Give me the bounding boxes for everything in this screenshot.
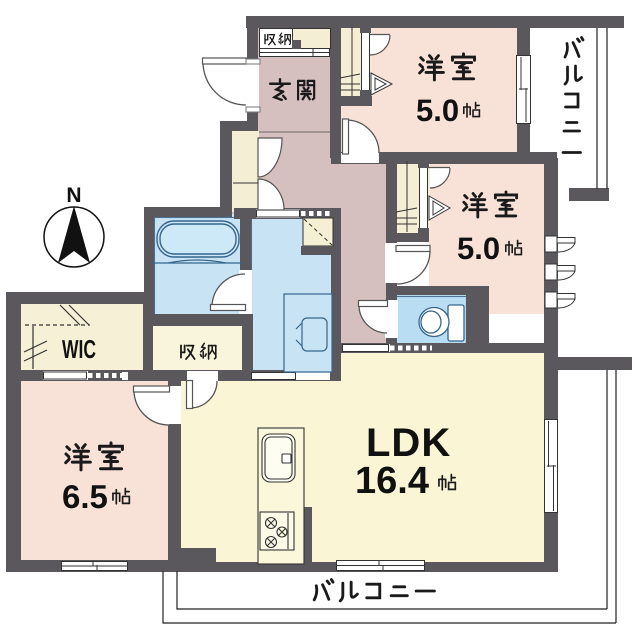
svg-text:6.5: 6.5 [62, 478, 108, 515]
svg-text:5.0: 5.0 [416, 93, 459, 128]
svg-text:N: N [66, 184, 81, 207]
svg-text:16.4: 16.4 [355, 460, 429, 502]
svg-text:5.0: 5.0 [457, 231, 500, 266]
svg-text:WIC: WIC [62, 334, 96, 364]
svg-text:LDK: LDK [366, 421, 451, 465]
